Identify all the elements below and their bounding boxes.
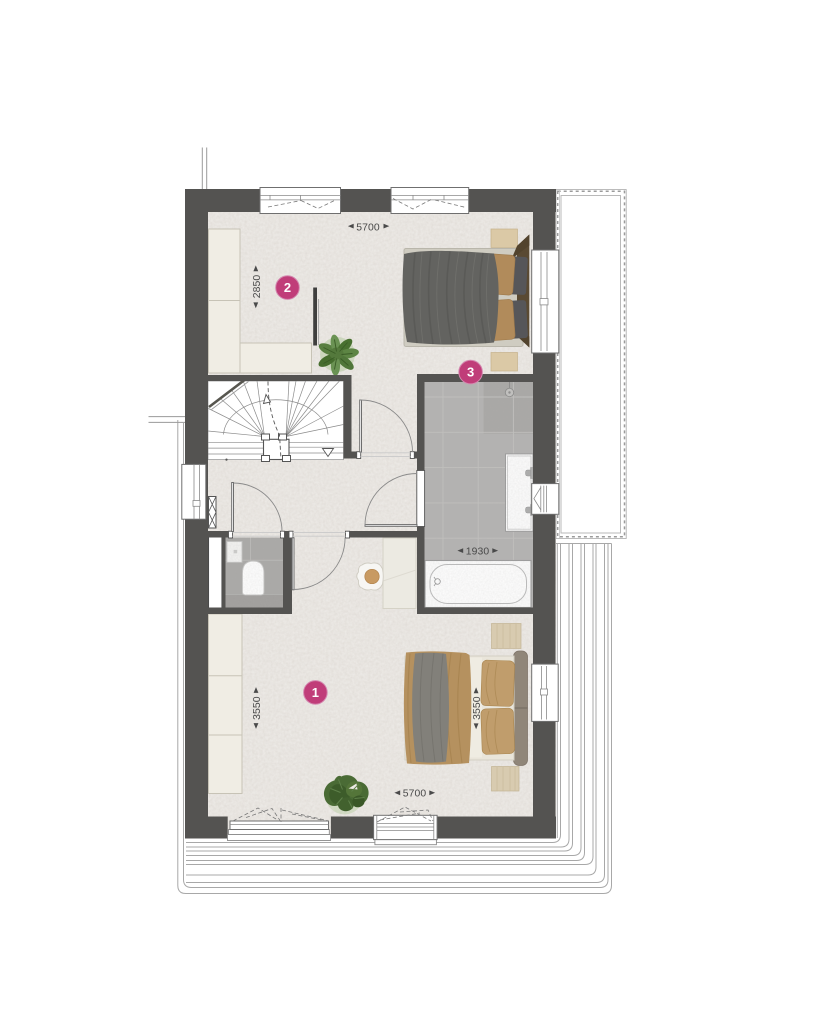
svg-text:2: 2 [284,280,291,295]
svg-text:1930: 1930 [466,546,490,557]
svg-text:3: 3 [467,365,474,380]
svg-text:3550: 3550 [472,696,483,720]
svg-text:3550: 3550 [252,696,263,720]
svg-text:1: 1 [312,685,319,700]
svg-text:2850: 2850 [252,275,263,299]
svg-text:5700: 5700 [356,222,380,233]
svg-text:5700: 5700 [403,788,427,799]
